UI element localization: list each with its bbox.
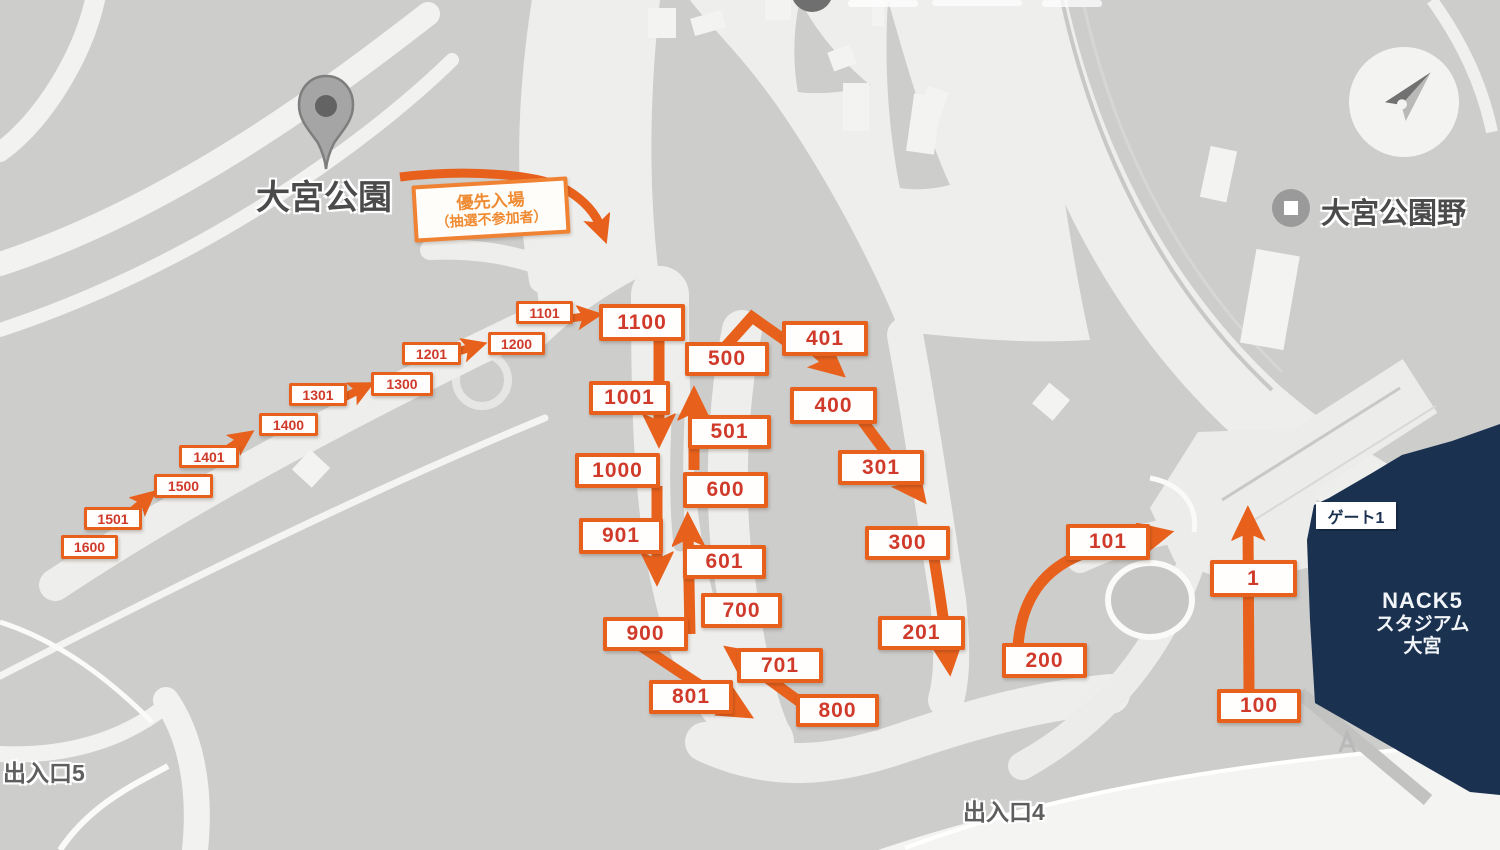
queue-marker-901: 901 — [579, 518, 663, 554]
queue-marker-1101: 1101 — [516, 301, 573, 324]
compass-icon[interactable] — [1349, 47, 1459, 157]
stadium-queue-map: 大宮公園 大宮公園野 出入口5 出入口4 優先入場 （抽選不参加者） ゲート1 … — [0, 0, 1500, 850]
queue-marker-1501: 1501 — [84, 507, 142, 530]
queue-marker-1000: 1000 — [575, 453, 660, 488]
queue-marker-201: 201 — [878, 616, 965, 650]
queue-marker-1: 1 — [1210, 560, 1297, 597]
queue-marker-1400: 1400 — [259, 413, 318, 436]
queue-marker-1401: 1401 — [179, 445, 239, 468]
queue-marker-1200: 1200 — [488, 332, 545, 355]
queue-marker-801: 801 — [649, 680, 733, 714]
priority-entry-label: 優先入場 （抽選不参加者） — [411, 176, 570, 242]
queue-marker-601: 601 — [683, 545, 766, 579]
queue-marker-300: 300 — [865, 526, 950, 560]
queue-marker-800: 800 — [796, 694, 879, 727]
queue-marker-401: 401 — [782, 321, 868, 356]
priority-entry-line2: （抽選不参加者） — [435, 208, 548, 231]
queue-marker-700: 700 — [701, 593, 782, 628]
exit4-label: 出入口4 — [963, 793, 1045, 827]
exit5-label: 出入口5 — [3, 754, 85, 788]
queue-marker-400: 400 — [790, 387, 877, 424]
queue-marker-701: 701 — [737, 648, 823, 683]
queue-marker-600: 600 — [683, 472, 768, 508]
queue-marker-500: 500 — [685, 342, 769, 376]
park-name-label: 大宮公園 — [256, 170, 392, 219]
queue-marker-1201: 1201 — [402, 342, 461, 365]
baseball-park-label: 大宮公園野 — [1321, 190, 1466, 232]
baseball-venue-icon[interactable] — [1272, 189, 1310, 227]
queue-marker-900: 900 — [603, 617, 688, 651]
queue-marker-100: 100 — [1217, 689, 1301, 723]
queue-marker-1001: 1001 — [589, 381, 670, 415]
gate1-label: ゲート1 — [1316, 502, 1396, 529]
stadium-name-label: NACK5 スタジアム 大宮 — [1350, 588, 1495, 659]
stadium-name-line3: 大宮 — [1350, 636, 1495, 658]
queue-marker-301: 301 — [838, 450, 924, 485]
queue-marker-101: 101 — [1066, 524, 1150, 560]
queue-marker-1100: 1100 — [599, 304, 685, 341]
queue-marker-200: 200 — [1002, 643, 1087, 678]
queue-marker-1300: 1300 — [371, 372, 433, 396]
queue-marker-501: 501 — [688, 415, 771, 449]
queue-marker-1500: 1500 — [154, 474, 213, 498]
queue-marker-1600: 1600 — [61, 535, 118, 559]
queue-marker-1301: 1301 — [289, 383, 347, 406]
stadium-name-line1: NACK5 — [1350, 588, 1495, 614]
stadium-name-line2: スタジアム — [1350, 614, 1495, 636]
